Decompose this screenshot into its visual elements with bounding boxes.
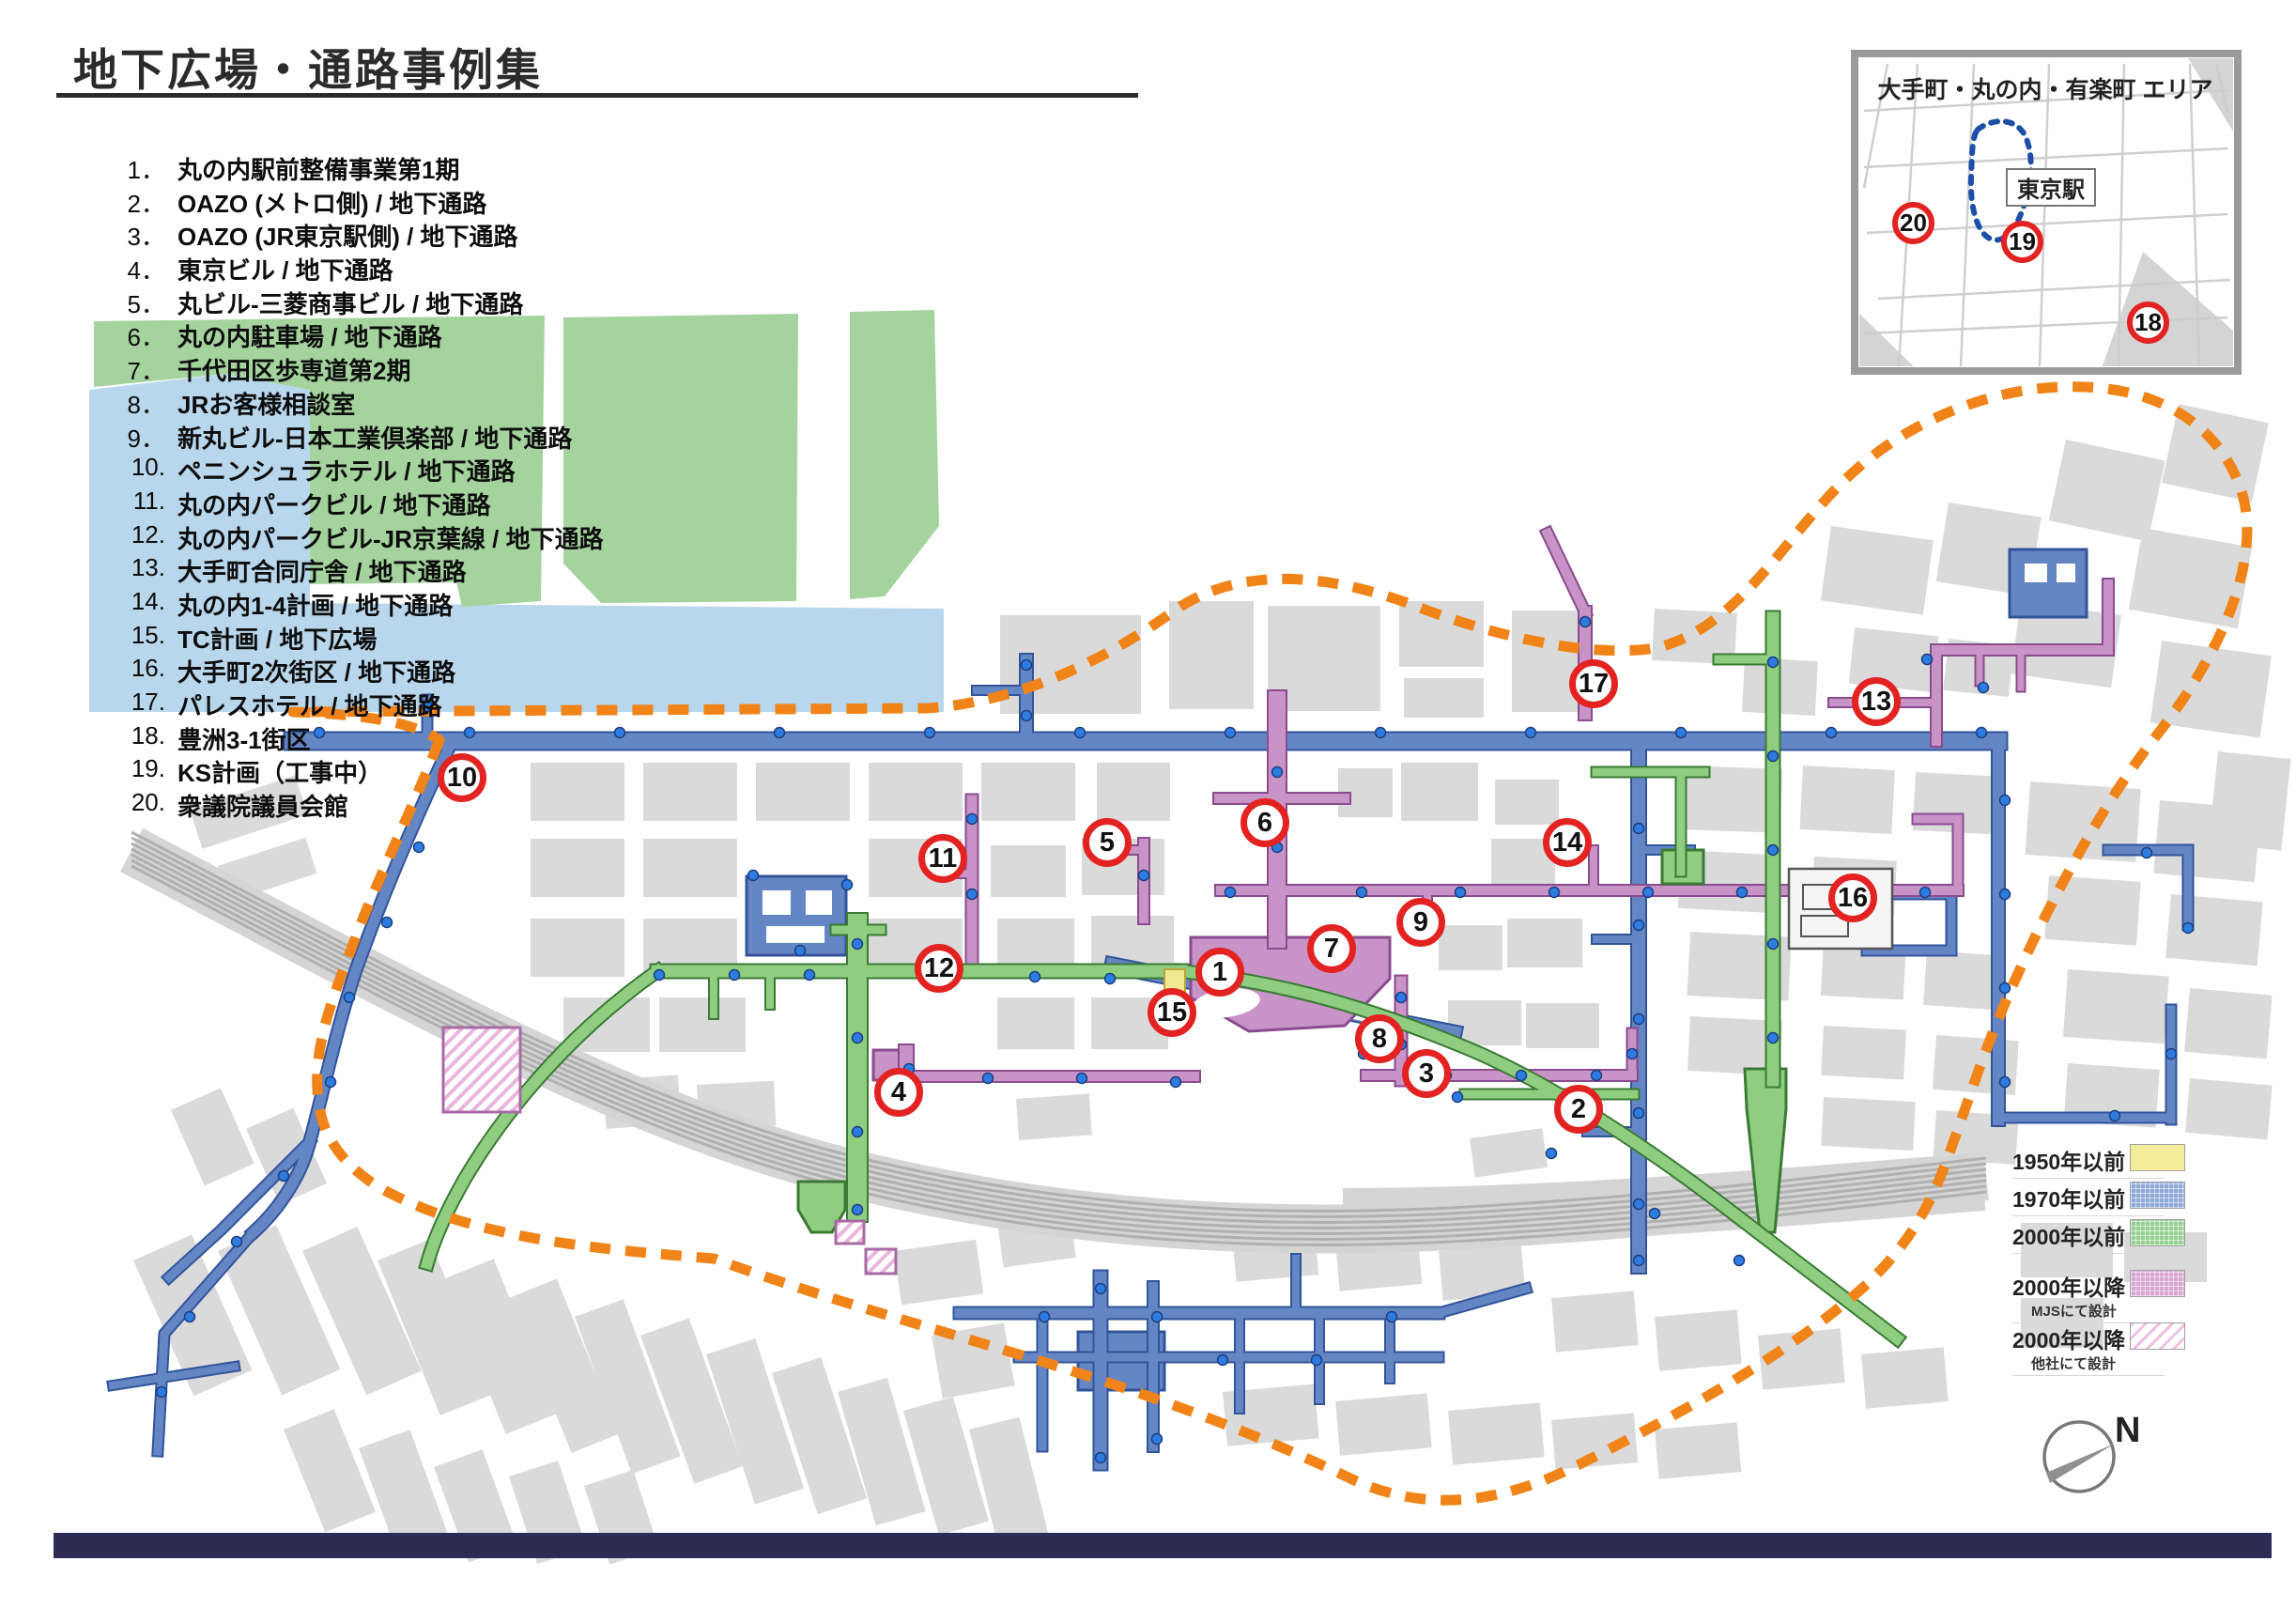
park-area bbox=[850, 310, 939, 599]
list-item: 4．東京ビル / 地下通路 bbox=[111, 252, 604, 286]
list-item-number: 18. bbox=[111, 721, 165, 755]
legend-separator bbox=[2012, 1178, 2165, 1179]
building-block bbox=[894, 1240, 983, 1306]
node-dot bbox=[925, 728, 935, 738]
building-block bbox=[1439, 925, 1502, 970]
building-block bbox=[1655, 1422, 1741, 1478]
inset-marker-19: 19 bbox=[2001, 221, 2043, 263]
node-dot bbox=[1737, 888, 1748, 898]
node-dot bbox=[2166, 1049, 2177, 1059]
list-item-number: 15. bbox=[111, 621, 165, 655]
node-dot bbox=[1526, 728, 1536, 738]
list-item-number: 9． bbox=[111, 420, 165, 454]
list-item-label: OAZO (JR東京駅側) / 地下通路 bbox=[177, 218, 518, 252]
node-dot bbox=[1357, 888, 1367, 898]
node-dot bbox=[853, 1205, 863, 1215]
building-block bbox=[1551, 1291, 1639, 1352]
hatched-other-design-area bbox=[866, 1249, 896, 1274]
node-dot bbox=[2110, 1111, 2120, 1121]
node-dot bbox=[1387, 1312, 1397, 1322]
node-dot bbox=[382, 918, 393, 928]
compass-north-label: N bbox=[2115, 1411, 2140, 1451]
list-item-number: 4． bbox=[111, 252, 165, 286]
list-item-label: 衆議院議員会館 bbox=[177, 788, 348, 822]
list-item-label: JRお客様相談室 bbox=[177, 386, 355, 420]
list-item: 12.丸の内パークビル-JR京葉線 / 地下通路 bbox=[111, 520, 604, 554]
list-item-label: KS計画（工事中） bbox=[177, 754, 382, 788]
list-item: 15.TC計画 / 地下広場 bbox=[111, 621, 604, 655]
node-dot bbox=[655, 970, 665, 981]
node-dot bbox=[1139, 871, 1149, 881]
map-marker-15: 15 bbox=[1148, 988, 1196, 1037]
node-dot bbox=[967, 889, 978, 900]
blue-passage-gap bbox=[766, 926, 824, 943]
legend-swatch bbox=[2130, 1219, 2185, 1246]
list-item-label: OAZO (メトロ側) / 地下通路 bbox=[177, 185, 486, 219]
node-dot bbox=[2142, 848, 2152, 858]
list-item: 6．丸の内駐車場 / 地下通路 bbox=[111, 318, 604, 352]
list-item: 13.大手町合同庁舎 / 地下通路 bbox=[111, 553, 604, 587]
node-dot bbox=[1030, 972, 1040, 982]
list-item-label: 大手町合同庁舎 / 地下通路 bbox=[177, 553, 467, 587]
node-dot bbox=[1225, 888, 1236, 898]
building-block bbox=[1526, 1003, 1599, 1048]
list-item-label: 丸ビル-三菱商事ビル / 地下通路 bbox=[177, 286, 523, 319]
building-block bbox=[869, 763, 963, 821]
building-block bbox=[659, 997, 746, 1052]
list-item: 9．新丸ビル-日本工業倶楽部 / 地下通路 bbox=[111, 420, 604, 454]
hatched-other-design-area bbox=[443, 1028, 520, 1112]
node-dot bbox=[853, 1127, 863, 1137]
node-dot bbox=[775, 728, 785, 738]
node-dot bbox=[1922, 655, 1933, 665]
legend-swatch bbox=[2130, 1270, 2185, 1297]
map-marker-4: 4 bbox=[874, 1068, 923, 1117]
map-marker-8: 8 bbox=[1355, 1014, 1404, 1063]
case-list: 1．丸の内駅前整備事業第1期2．OAZO (メトロ側) / 地下通路3．OAZO… bbox=[111, 151, 604, 822]
node-dot bbox=[1171, 1077, 1181, 1088]
node-dot bbox=[1920, 888, 1931, 898]
list-item-label: 千代田区歩専道第2期 bbox=[177, 352, 410, 386]
node-dot bbox=[2000, 1077, 2011, 1088]
node-dot bbox=[730, 970, 740, 981]
list-item-number: 5． bbox=[111, 286, 165, 319]
node-dot bbox=[1592, 1071, 1602, 1081]
list-item: 18.豊洲3-1街区 bbox=[111, 721, 604, 755]
building-block bbox=[643, 839, 737, 897]
node-dot bbox=[1272, 767, 1283, 778]
tokyo-station-label: 東京駅 bbox=[2006, 168, 2096, 207]
node-dot bbox=[1650, 1209, 1660, 1219]
node-dot bbox=[345, 993, 355, 1003]
map-marker-14: 14 bbox=[1543, 818, 1592, 867]
node-dot bbox=[1627, 1049, 1638, 1059]
building-block bbox=[2165, 894, 2263, 966]
building-block bbox=[2184, 988, 2273, 1059]
building-block bbox=[1404, 678, 1484, 718]
node-dot bbox=[1977, 728, 1987, 738]
node-dot bbox=[1634, 1108, 1644, 1119]
node-dot bbox=[1396, 993, 1407, 1003]
blue-passage-gap bbox=[2025, 564, 2047, 582]
building-block bbox=[1923, 951, 2000, 1010]
node-dot bbox=[1152, 1434, 1163, 1445]
list-item-number: 6． bbox=[111, 318, 165, 352]
list-item: 14.丸の内1-4計画 / 地下通路 bbox=[111, 587, 604, 621]
node-dot bbox=[1768, 657, 1779, 668]
map-marker-9: 9 bbox=[1396, 898, 1445, 947]
node-dot bbox=[1456, 888, 1466, 898]
node-dot bbox=[1768, 939, 1779, 950]
list-item-number: 3． bbox=[111, 218, 165, 252]
legend-separator bbox=[2012, 1375, 2165, 1376]
map-marker-2: 2 bbox=[1554, 1085, 1603, 1134]
legend-separator bbox=[2012, 1215, 2165, 1216]
inset-marker-20: 20 bbox=[1892, 202, 1934, 244]
legend-swatch bbox=[2130, 1322, 2185, 1350]
list-item-number: 13. bbox=[111, 553, 165, 587]
building-block bbox=[1448, 1402, 1545, 1464]
list-item: 10.ペニンシュラホテル / 地下通路 bbox=[111, 453, 604, 487]
list-item-number: 8． bbox=[111, 386, 165, 420]
list-item-label: 丸の内パークビル / 地下通路 bbox=[177, 487, 491, 520]
node-dot bbox=[1312, 1355, 1322, 1366]
list-item: 8．JRお客様相談室 bbox=[111, 386, 604, 420]
list-item-label: 新丸ビル-日本工業倶楽部 / 地下通路 bbox=[177, 420, 572, 454]
map-marker-6: 6 bbox=[1240, 798, 1289, 847]
list-item-label: 丸の内駐車場 / 地下通路 bbox=[177, 318, 442, 352]
list-item-label: 大手町2次街区 / 地下通路 bbox=[177, 654, 455, 688]
node-dot bbox=[853, 1033, 863, 1043]
node-dot bbox=[615, 728, 625, 738]
map-marker-1: 1 bbox=[1195, 948, 1244, 997]
list-item: 2．OAZO (メトロ側) / 地下通路 bbox=[111, 185, 604, 219]
map-marker-16: 16 bbox=[1828, 873, 1877, 922]
map-marker-13: 13 bbox=[1852, 677, 1901, 726]
node-dot bbox=[1634, 920, 1644, 931]
node-dot bbox=[1768, 845, 1779, 856]
building-block bbox=[1507, 919, 1582, 967]
building-block bbox=[2162, 404, 2269, 502]
map-marker-10: 10 bbox=[438, 753, 486, 802]
building-block bbox=[1861, 1347, 1949, 1408]
node-dot bbox=[1096, 1453, 1106, 1463]
blue-passage-area bbox=[747, 876, 846, 955]
list-item-number: 19. bbox=[111, 754, 165, 788]
map-marker-5: 5 bbox=[1083, 818, 1132, 867]
building-block bbox=[2049, 440, 2165, 542]
node-dot bbox=[1580, 617, 1591, 627]
node-dot bbox=[2183, 923, 2194, 934]
node-dot bbox=[1040, 1312, 1050, 1322]
building-block bbox=[1655, 1309, 1742, 1370]
node-dot bbox=[2000, 889, 2011, 900]
node-dot bbox=[1218, 1355, 1228, 1366]
building-block bbox=[171, 1088, 254, 1185]
map-marker-12: 12 bbox=[915, 944, 963, 993]
building-block bbox=[1821, 1097, 1916, 1151]
node-dot bbox=[157, 1387, 167, 1398]
inset-map-title: 大手町・丸の内・有楽町 エリア bbox=[1871, 71, 2220, 105]
node-dot bbox=[1643, 888, 1654, 898]
building-block bbox=[2063, 969, 2169, 1043]
list-item-number: 1． bbox=[111, 151, 165, 185]
list-item: 16.大手町2次街区 / 地下通路 bbox=[111, 654, 604, 688]
node-dot bbox=[1549, 888, 1560, 898]
node-dot bbox=[1152, 1312, 1163, 1322]
legend-swatch bbox=[2130, 1182, 2185, 1209]
building-block bbox=[1470, 1128, 1548, 1177]
building-block bbox=[1097, 763, 1170, 821]
building-block bbox=[756, 763, 850, 821]
building-block bbox=[1821, 526, 1934, 615]
list-item: 7．千代田区歩専道第2期 bbox=[111, 352, 604, 386]
list-item: 19.KS計画（工事中） bbox=[111, 754, 604, 788]
purple-passage bbox=[1548, 533, 1585, 612]
building-block bbox=[1335, 1393, 1432, 1455]
legend-separator bbox=[2012, 1253, 2165, 1254]
node-dot bbox=[1826, 728, 1837, 738]
list-item: 20.衆議院議員会館 bbox=[111, 788, 604, 822]
building-block bbox=[284, 1409, 376, 1532]
list-item: 11.丸の内パークビル / 地下通路 bbox=[111, 487, 604, 520]
list-item: 17.パレスホテル / 地下通路 bbox=[111, 688, 604, 721]
node-dot bbox=[1768, 1033, 1779, 1043]
blue-passage-area bbox=[2010, 549, 2087, 617]
node-dot bbox=[232, 1237, 242, 1247]
node-dot bbox=[1634, 1256, 1644, 1266]
node-dot bbox=[853, 939, 863, 950]
node-dot bbox=[748, 871, 759, 881]
building-block bbox=[1799, 765, 1894, 834]
node-dot bbox=[185, 1312, 195, 1322]
map-marker-17: 17 bbox=[1569, 659, 1618, 708]
list-item-number: 17. bbox=[111, 688, 165, 721]
list-item-label: 丸の内1-4計画 / 地下通路 bbox=[177, 587, 453, 621]
building-block bbox=[1495, 780, 1559, 825]
list-item-number: 7． bbox=[111, 352, 165, 386]
list-item-number: 2． bbox=[111, 185, 165, 219]
list-item-number: 14. bbox=[111, 587, 165, 621]
building-block bbox=[997, 997, 1074, 1049]
building-block bbox=[981, 763, 1075, 821]
building-block bbox=[643, 763, 737, 821]
compass-layer bbox=[2044, 1422, 2115, 1492]
node-dot bbox=[1077, 1074, 1087, 1084]
node-dot bbox=[1105, 974, 1116, 984]
building-block bbox=[1016, 1094, 1092, 1140]
list-item-label: 丸の内パークビル-JR京葉線 / 地下通路 bbox=[177, 520, 604, 554]
node-dot bbox=[795, 946, 806, 956]
node-dot bbox=[1225, 728, 1236, 738]
map-marker-3: 3 bbox=[1402, 1049, 1451, 1098]
map-marker-7: 7 bbox=[1307, 924, 1356, 973]
list-item: 3．OAZO (JR東京駅側) / 地下通路 bbox=[111, 218, 604, 252]
building-block bbox=[531, 919, 624, 977]
blue-passage-gap bbox=[2057, 564, 2075, 582]
map-marker-11: 11 bbox=[918, 834, 967, 883]
page-title: 地下広場・通路事例集 bbox=[73, 34, 543, 99]
hatched-other-design-area bbox=[836, 1221, 864, 1244]
node-dot bbox=[1979, 683, 1989, 693]
node-dot bbox=[1547, 1149, 1557, 1159]
node-dot bbox=[2000, 796, 2011, 806]
bottom-navy-bar bbox=[54, 1533, 2272, 1558]
node-dot bbox=[1075, 728, 1086, 738]
building-block bbox=[991, 845, 1066, 897]
list-item-label: 豊洲3-1街区 bbox=[177, 721, 311, 755]
node-dot bbox=[1634, 824, 1644, 834]
building-block bbox=[531, 839, 624, 897]
building-block bbox=[903, 1397, 989, 1536]
building-block bbox=[2153, 800, 2260, 882]
list-item-label: ペニンシュラホテル / 地下通路 bbox=[177, 453, 516, 487]
list-item-label: 東京ビル / 地下通路 bbox=[177, 252, 393, 286]
title-underline bbox=[56, 93, 1138, 98]
legend-swatch bbox=[2130, 1144, 2185, 1171]
node-dot bbox=[1676, 728, 1687, 738]
building-block bbox=[1821, 1026, 1906, 1080]
building-block bbox=[1401, 763, 1478, 821]
list-item: 5．丸ビル-三菱商事ビル / 地下通路 bbox=[111, 286, 604, 319]
list-item-number: 16. bbox=[111, 654, 165, 688]
building-block bbox=[2185, 1078, 2273, 1139]
node-dot bbox=[1768, 751, 1779, 762]
node-dot bbox=[1022, 660, 1032, 671]
page: 地下広場・通路事例集 1．丸の内駅前整備事業第1期2．OAZO (メトロ側) /… bbox=[0, 0, 2296, 1623]
node-dot bbox=[1517, 1071, 1527, 1081]
node-dot bbox=[805, 970, 815, 981]
node-dot bbox=[326, 1077, 336, 1088]
building-block bbox=[1512, 611, 1579, 712]
node-dot bbox=[279, 1171, 289, 1182]
list-item-number: 11. bbox=[111, 487, 165, 520]
node-dot bbox=[983, 1074, 994, 1084]
node-dot bbox=[842, 880, 853, 890]
list-item: 1．丸の内駅前整備事業第1期 bbox=[111, 151, 604, 185]
node-dot bbox=[1022, 711, 1032, 721]
legend-sublabel: MJSにて設計 bbox=[2031, 1301, 2200, 1321]
node-dot bbox=[1376, 728, 1386, 738]
node-dot bbox=[1634, 1199, 1644, 1210]
blue-passage-gap bbox=[806, 890, 832, 915]
inset-marker-18: 18 bbox=[2127, 301, 2169, 344]
legend-sublabel: 他社にて設計 bbox=[2031, 1353, 2200, 1373]
list-item-label: 丸の内駅前整備事業第1期 bbox=[177, 151, 459, 185]
building-block bbox=[1169, 601, 1254, 709]
node-dot bbox=[2000, 983, 2011, 994]
list-item-number: 20. bbox=[111, 788, 165, 822]
list-item-label: パレスホテル / 地下通路 bbox=[177, 688, 442, 721]
node-dot bbox=[1634, 1014, 1644, 1025]
node-dot bbox=[1453, 1092, 1463, 1103]
list-item-number: 12. bbox=[111, 520, 165, 554]
node-dot bbox=[1734, 1256, 1745, 1266]
blue-passage-gap bbox=[763, 890, 791, 915]
list-item-number: 10. bbox=[111, 453, 165, 487]
node-dot bbox=[967, 814, 978, 825]
node-dot bbox=[1096, 1284, 1106, 1294]
compass-circle bbox=[2044, 1422, 2114, 1492]
list-item-label: TC計画 / 地下広場 bbox=[177, 621, 377, 655]
node-dot bbox=[414, 842, 424, 853]
